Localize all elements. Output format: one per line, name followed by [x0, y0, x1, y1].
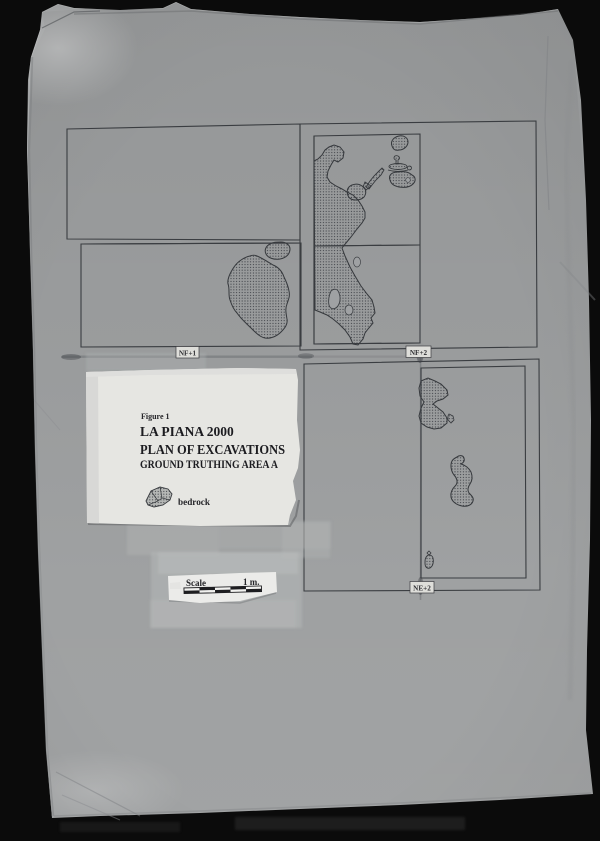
svg-text:GROUND TRUTHING AREA A: GROUND TRUTHING AREA A	[140, 459, 278, 471]
svg-text:Figure 1: Figure 1	[141, 412, 170, 421]
svg-text:Scale: Scale	[186, 578, 206, 588]
svg-text:bedrock: bedrock	[178, 497, 211, 507]
svg-text:NF+2: NF+2	[410, 349, 428, 357]
svg-text:LA PIANA 2000: LA PIANA 2000	[140, 424, 234, 439]
svg-text:1 m.: 1 m.	[243, 577, 260, 587]
svg-text:NF+1: NF+1	[179, 350, 197, 358]
svg-text:NE+2: NE+2	[413, 585, 431, 593]
svg-text:PLAN OF EXCAVATIONS: PLAN OF EXCAVATIONS	[140, 442, 285, 457]
